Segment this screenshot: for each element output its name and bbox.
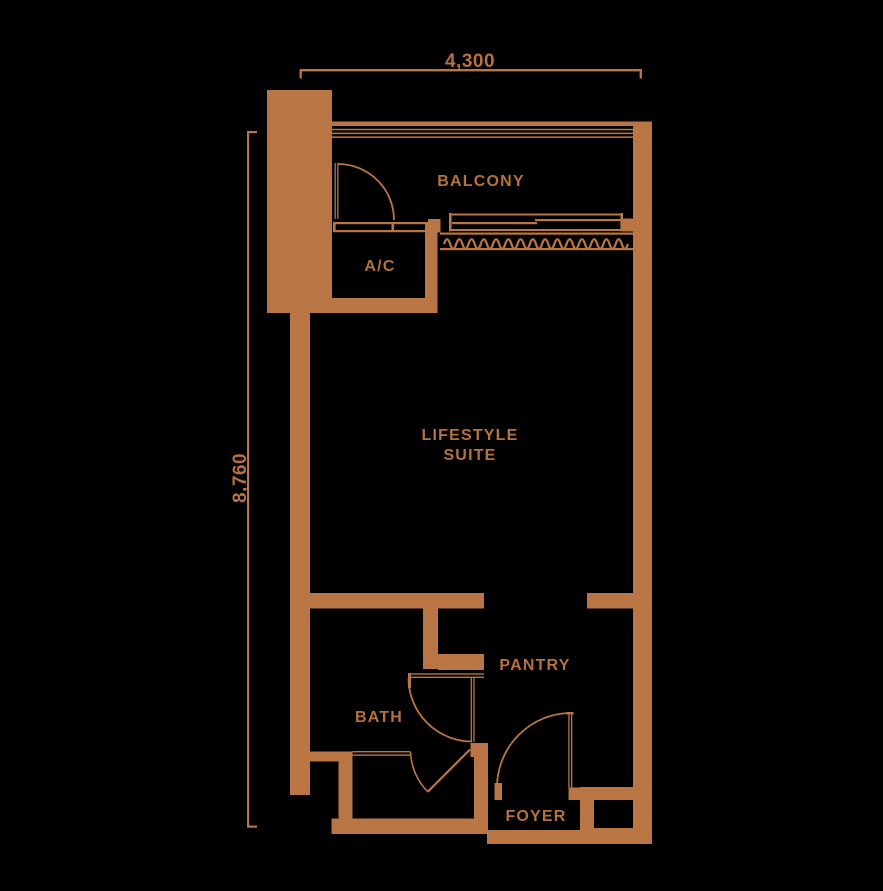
wall-right bbox=[633, 123, 652, 844]
sliding-door-panel-left bbox=[452, 222, 537, 224]
floor-plan-drawing: 4,300 8,760 BALCONY A/C LIFESTYLE SUITE … bbox=[0, 0, 883, 891]
dimension-tick bbox=[247, 131, 257, 133]
wall-pantry-divider-stub bbox=[438, 654, 484, 670]
shower-door bbox=[353, 750, 471, 793]
sill-line bbox=[333, 230, 428, 232]
balcony-label: BALCONY bbox=[437, 173, 525, 190]
door-leaf bbox=[337, 163, 338, 219]
railing-line bbox=[332, 129, 634, 131]
sliding-door-panel-right bbox=[535, 219, 621, 221]
foyer-label: FOYER bbox=[505, 808, 566, 825]
railing-top-line bbox=[332, 122, 652, 127]
wall-shaft-top bbox=[580, 787, 652, 800]
boundary-line bbox=[440, 233, 634, 235]
dimension-tick bbox=[640, 69, 642, 79]
shower-screen-line bbox=[353, 751, 411, 752]
bath-door bbox=[408, 673, 484, 742]
wall-foyer-door-jamb-left bbox=[495, 783, 503, 800]
suite-label-line1: LIFESTYLE bbox=[421, 427, 518, 444]
wall-suite-bottom-left bbox=[300, 593, 484, 609]
railing-line bbox=[332, 136, 634, 138]
dimension-tick bbox=[247, 826, 257, 828]
wall-shaft-bottom bbox=[594, 828, 652, 844]
shower-screen-line bbox=[353, 754, 411, 755]
door-leaf bbox=[571, 713, 572, 788]
wall-shaft-left bbox=[580, 800, 594, 844]
suite-top-boundary bbox=[440, 233, 634, 251]
wall-ac-bottom bbox=[332, 298, 438, 313]
balcony-door bbox=[335, 163, 395, 220]
ac-sill bbox=[333, 222, 428, 232]
sliding-door bbox=[428, 213, 634, 233]
floor-plan: 4,300 8,760 BALCONY A/C LIFESTYLE SUITE … bbox=[0, 0, 883, 891]
sliding-door-wall-stub bbox=[623, 219, 634, 232]
foyer-door bbox=[497, 712, 574, 788]
suite-label-line2: SUITE bbox=[443, 447, 496, 464]
wall-foyer-bottom bbox=[487, 830, 594, 844]
ac-label: A/C bbox=[364, 258, 395, 275]
bath-door-arc bbox=[409, 678, 473, 742]
wall-left bbox=[290, 313, 310, 795]
foyer-door-arc bbox=[497, 713, 571, 787]
balcony-door-arc bbox=[339, 164, 395, 220]
height-dimension-label: 8,760 bbox=[230, 453, 251, 503]
wall-pantry-divider-vertical bbox=[423, 608, 438, 669]
sliding-door-track-bottom bbox=[449, 229, 623, 231]
door-leaf bbox=[473, 678, 474, 742]
sliding-door-end-cap bbox=[620, 213, 623, 231]
door-header-line bbox=[409, 673, 485, 674]
wall-foyer-door-jamb-right bbox=[569, 788, 582, 801]
width-dimension-label: 4,300 bbox=[445, 51, 495, 72]
wall-bath-step-horizontal bbox=[310, 752, 353, 762]
height-dimension: 8,760 bbox=[230, 131, 257, 828]
balcony-railing bbox=[332, 122, 652, 138]
door-leaf bbox=[568, 713, 569, 788]
dimension-tick bbox=[300, 69, 302, 79]
railing-line bbox=[332, 133, 634, 135]
wall-bath-bottom bbox=[332, 819, 488, 835]
width-dimension: 4,300 bbox=[300, 51, 643, 79]
pantry-label: PANTRY bbox=[499, 657, 570, 674]
door-header-line bbox=[409, 677, 485, 678]
walls bbox=[267, 90, 652, 844]
shower-door-leaf bbox=[428, 750, 471, 793]
door-leaf bbox=[335, 163, 336, 219]
sill-tick bbox=[333, 222, 336, 232]
shower-door-arc bbox=[411, 752, 428, 792]
wall-bath-step-vertical bbox=[339, 762, 353, 819]
insect-screen-wave bbox=[444, 239, 628, 249]
sliding-door-end-cap bbox=[449, 213, 452, 231]
bath-label: BATH bbox=[355, 709, 403, 726]
wall-column-block bbox=[267, 90, 332, 313]
room-labels: BALCONY A/C LIFESTYLE SUITE PANTRY BATH … bbox=[355, 173, 571, 825]
sill-tick bbox=[392, 222, 395, 232]
sliding-door-wall-post bbox=[428, 219, 441, 233]
wall-suite-bottom-right bbox=[587, 593, 634, 609]
sliding-door-track-top bbox=[449, 214, 623, 216]
door-leaf bbox=[471, 678, 472, 742]
sill-line bbox=[333, 222, 428, 224]
